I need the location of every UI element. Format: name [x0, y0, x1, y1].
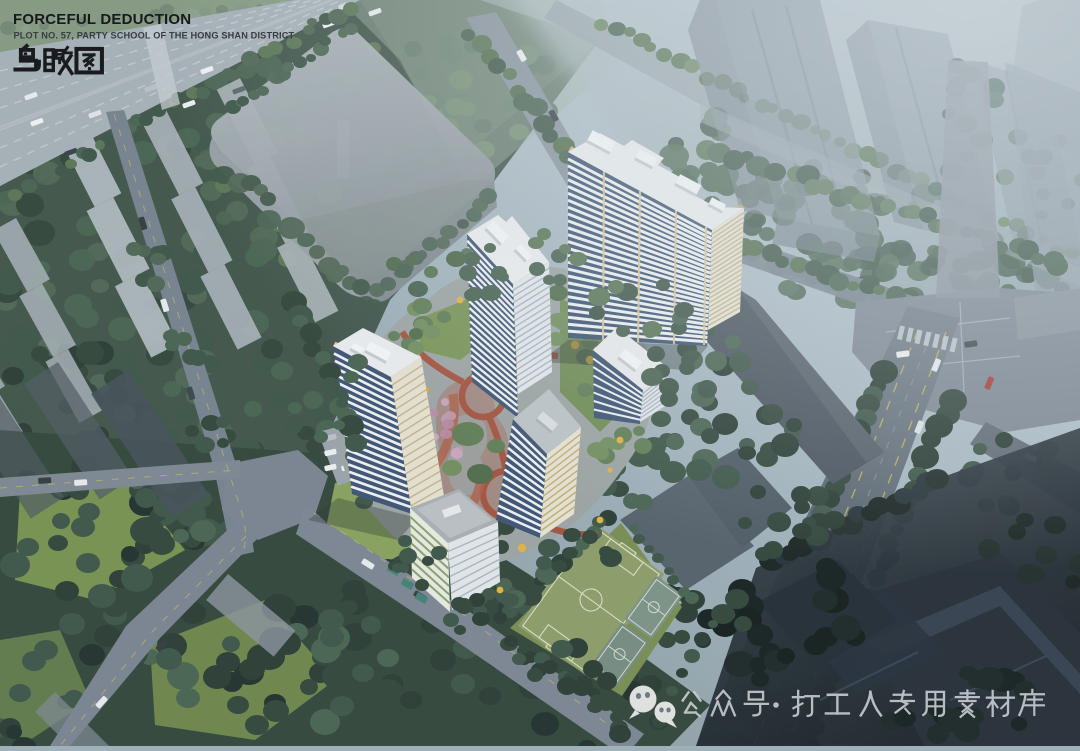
svg-text:PLOT NO. 57, PARTY SCHOOL OF T: PLOT NO. 57, PARTY SCHOOL OF THE HONG SH…: [14, 31, 295, 41]
svg-text:FORCEFUL DEDUCTION: FORCEFUL DEDUCTION: [13, 11, 191, 28]
